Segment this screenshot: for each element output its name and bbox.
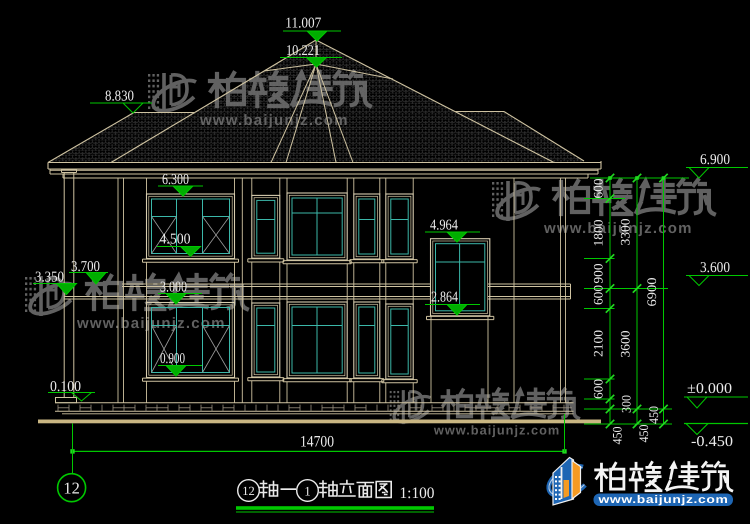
svg-text:4.500: 4.500 [160, 232, 191, 248]
svg-text:3600: 3600 [618, 331, 633, 358]
svg-text:±0.000: ±0.000 [687, 381, 732, 397]
svg-text:450: 450 [646, 406, 661, 424]
svg-text:3.350: 3.350 [35, 270, 64, 286]
svg-text:0.900: 0.900 [160, 351, 185, 367]
svg-text:2100: 2100 [591, 330, 606, 357]
svg-text:6.300: 6.300 [162, 172, 189, 188]
svg-text:www.baijunjz.com: www.baijunjz.com [597, 494, 728, 506]
svg-text:14700: 14700 [300, 434, 334, 451]
svg-text:1800: 1800 [591, 220, 606, 247]
svg-text:3.600: 3.600 [700, 260, 730, 276]
svg-text:6.900: 6.900 [700, 152, 730, 168]
svg-text:450: 450 [610, 427, 625, 445]
svg-text:1:100: 1:100 [400, 485, 435, 502]
svg-text:6900: 6900 [644, 278, 659, 307]
svg-text:12: 12 [63, 479, 80, 498]
svg-text:-0.450: -0.450 [691, 434, 733, 450]
svg-text:3.700: 3.700 [71, 259, 100, 275]
svg-text:900: 900 [591, 264, 606, 284]
svg-text:600: 600 [591, 285, 606, 305]
svg-text:10.221: 10.221 [286, 43, 320, 59]
svg-text:8.830: 8.830 [105, 89, 134, 105]
svg-text:12: 12 [242, 484, 255, 498]
svg-text:600: 600 [591, 379, 606, 399]
svg-text:2.864: 2.864 [431, 290, 458, 306]
svg-text:300: 300 [619, 395, 634, 413]
svg-text:4.964: 4.964 [430, 218, 458, 234]
svg-text:3300: 3300 [618, 219, 633, 246]
svg-text:0.100: 0.100 [50, 379, 81, 395]
svg-text:11.007: 11.007 [285, 16, 321, 32]
svg-text:450: 450 [636, 425, 651, 443]
svg-text:1: 1 [304, 484, 311, 499]
svg-text:3.000: 3.000 [160, 280, 187, 296]
svg-text:600: 600 [591, 179, 606, 199]
